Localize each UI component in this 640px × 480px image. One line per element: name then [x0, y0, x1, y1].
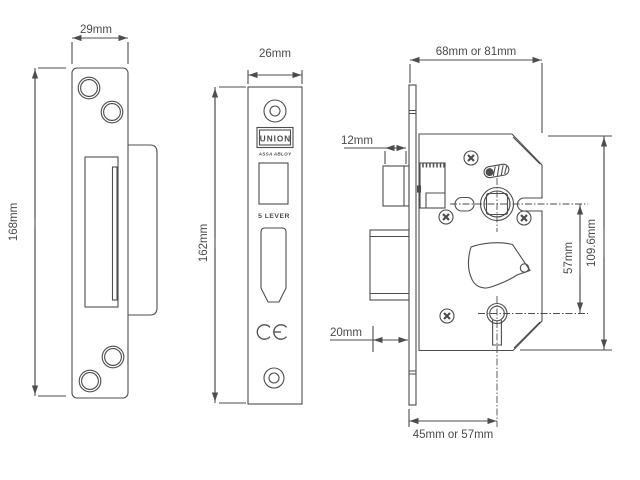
dim-strike-width	[72, 38, 128, 64]
backset-label: 45mm or 57mm	[413, 429, 494, 441]
strike-width-label: 29mm	[80, 24, 112, 36]
dim-case-depth	[410, 60, 542, 133]
dim-latch-projection	[344, 148, 406, 164]
forend-plate	[409, 85, 416, 405]
faceplate-width-label: 26mm	[259, 48, 291, 60]
dim-faceplate-width	[248, 70, 302, 84]
centres-label: 57mm	[563, 242, 575, 274]
deadbolt	[370, 230, 409, 300]
strike-height-label: 168mm	[8, 203, 20, 241]
drawing-svg: 29mm 168mm 26mm 162mm UNION ASSA ABLOY 5…	[0, 0, 640, 480]
latch-projection-label: 12mm	[341, 135, 373, 147]
latch-bolt	[383, 166, 409, 206]
faceplate-view	[215, 70, 302, 404]
strike-plate-view	[35, 38, 157, 398]
five-lever-label: 5 LEVER	[258, 213, 290, 220]
assa-abloy-label: ASSA ABLOY	[258, 152, 292, 157]
mortice-lock-technical-drawing: 29mm 168mm 26mm 162mm UNION ASSA ABLOY 5…	[0, 0, 640, 480]
faceplate-height-label: 162mm	[198, 224, 210, 262]
dim-faceplate-height	[215, 87, 246, 403]
dim-strike-height	[35, 68, 66, 396]
union-brand-label: UNION	[260, 135, 291, 144]
dim-backset	[409, 409, 497, 427]
case-depth-label: 68mm or 81mm	[436, 46, 517, 58]
keep-box	[128, 145, 157, 315]
case-height-label: 109.6mm	[586, 219, 598, 267]
deadbolt-throw-label: 20mm	[330, 327, 362, 339]
